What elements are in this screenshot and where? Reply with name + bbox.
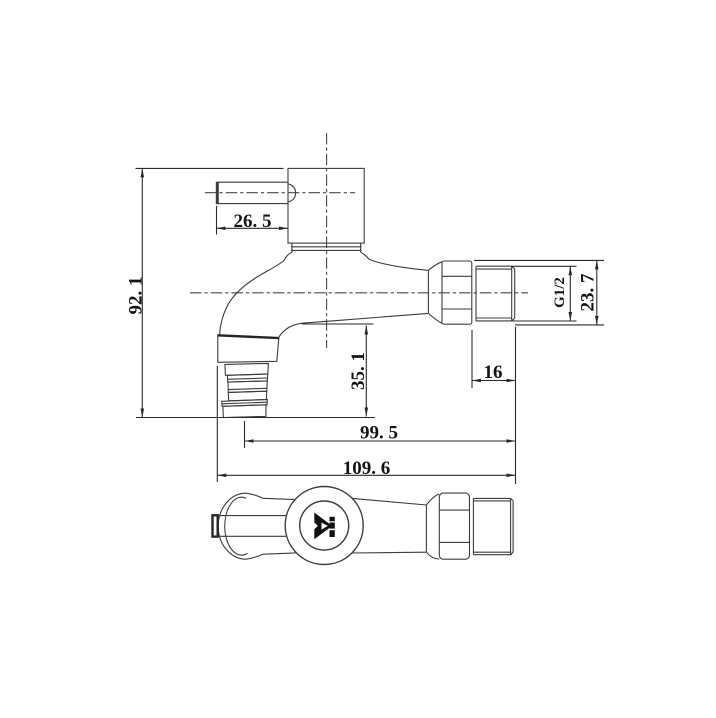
svg-text:G1/2: G1/2 <box>552 277 568 308</box>
svg-text:23. 7: 23. 7 <box>578 273 599 312</box>
svg-text:26. 5: 26. 5 <box>234 211 272 232</box>
svg-text:92. 1: 92. 1 <box>126 277 147 315</box>
svg-text:35. 1: 35. 1 <box>348 352 369 390</box>
svg-text:109. 6: 109. 6 <box>343 458 391 479</box>
svg-text:99. 5: 99. 5 <box>360 423 398 444</box>
svg-text:16: 16 <box>484 362 503 383</box>
